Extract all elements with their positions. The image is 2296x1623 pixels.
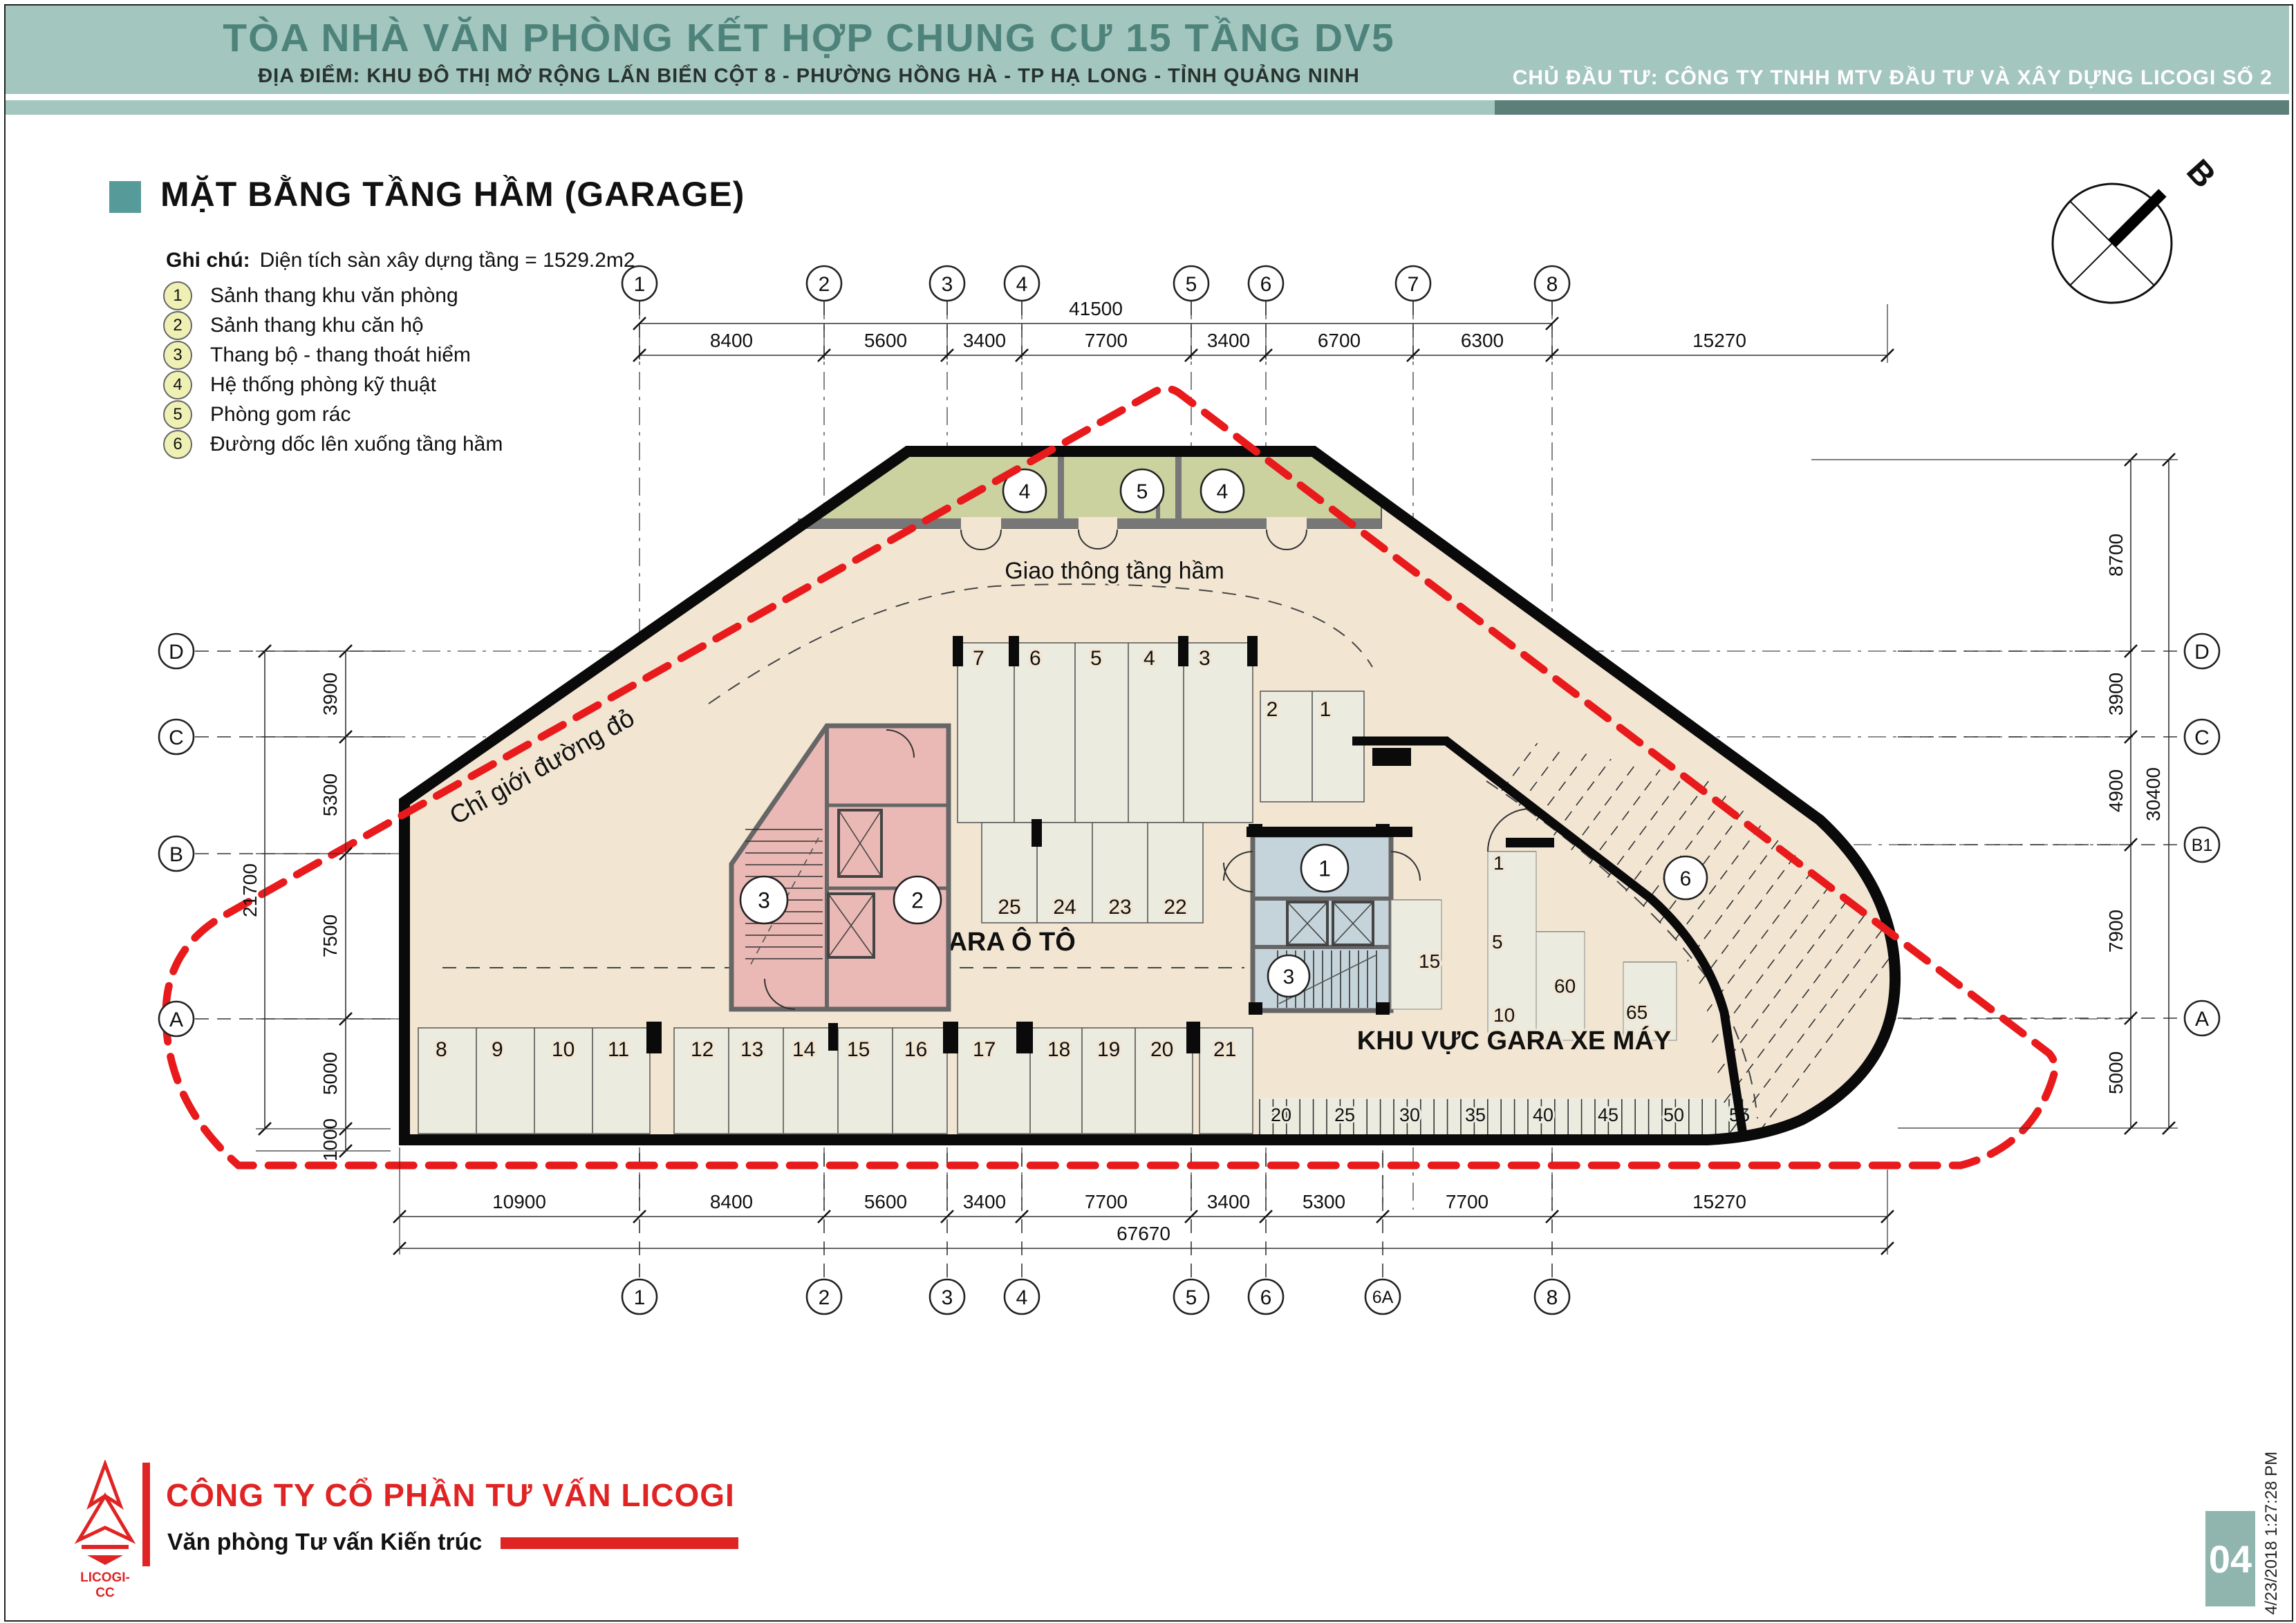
svg-text:7700: 7700 xyxy=(1085,1191,1128,1212)
svg-text:10: 10 xyxy=(1493,1004,1515,1026)
svg-text:KHU VỰC GARA XE MÁY: KHU VỰC GARA XE MÁY xyxy=(1357,1025,1671,1056)
svg-text:4: 4 xyxy=(1016,1286,1028,1309)
svg-text:5: 5 xyxy=(1492,931,1503,953)
svg-text:6700: 6700 xyxy=(1318,330,1361,351)
svg-text:C: C xyxy=(2194,726,2210,749)
svg-text:10: 10 xyxy=(552,1038,575,1061)
svg-text:30: 30 xyxy=(1399,1105,1420,1125)
svg-text:B: B xyxy=(2179,153,2223,195)
svg-text:8400: 8400 xyxy=(710,1191,753,1212)
logo-caption: LICOGI-CC xyxy=(72,1570,138,1601)
company-name: CÔNG TY CỔ PHẦN TƯ VẤN LICOGI xyxy=(166,1476,735,1514)
svg-text:1: 1 xyxy=(1318,856,1331,881)
svg-text:7700: 7700 xyxy=(1085,330,1128,351)
svg-text:B1: B1 xyxy=(2192,836,2213,855)
svg-text:3: 3 xyxy=(1199,647,1211,670)
svg-text:8700: 8700 xyxy=(2105,534,2127,576)
svg-text:23: 23 xyxy=(1108,896,1131,919)
svg-text:8400: 8400 xyxy=(710,330,753,351)
svg-text:B: B xyxy=(169,843,183,866)
svg-text:24: 24 xyxy=(1053,896,1076,919)
svg-text:6300: 6300 xyxy=(1461,330,1504,351)
svg-text:8: 8 xyxy=(436,1038,447,1061)
svg-text:5: 5 xyxy=(1137,480,1148,503)
north-arrow-icon: B xyxy=(2053,153,2223,303)
svg-text:3: 3 xyxy=(1283,966,1295,988)
svg-text:20: 20 xyxy=(1271,1105,1291,1125)
svg-text:5: 5 xyxy=(1090,647,1102,670)
svg-text:3400: 3400 xyxy=(963,1191,1006,1212)
svg-text:13: 13 xyxy=(740,1038,763,1061)
svg-text:2: 2 xyxy=(1267,698,1278,721)
svg-text:21: 21 xyxy=(1213,1038,1236,1061)
svg-text:4: 4 xyxy=(1217,480,1229,503)
svg-text:7500: 7500 xyxy=(319,914,341,957)
svg-text:12: 12 xyxy=(691,1038,713,1061)
svg-text:20: 20 xyxy=(1150,1038,1173,1061)
svg-text:25: 25 xyxy=(1334,1105,1355,1125)
svg-text:15: 15 xyxy=(847,1038,870,1061)
svg-text:A: A xyxy=(2195,1008,2209,1031)
svg-text:1000: 1000 xyxy=(319,1118,341,1161)
svg-text:1: 1 xyxy=(1493,852,1504,874)
svg-text:3400: 3400 xyxy=(963,330,1006,351)
svg-text:50: 50 xyxy=(1663,1105,1684,1125)
svg-text:4: 4 xyxy=(1016,273,1028,296)
svg-text:4900: 4900 xyxy=(2105,769,2127,812)
svg-text:7900: 7900 xyxy=(2105,910,2127,953)
svg-text:3400: 3400 xyxy=(1207,330,1250,351)
svg-text:8: 8 xyxy=(1547,273,1558,296)
svg-text:5600: 5600 xyxy=(864,1191,907,1212)
licogi-logo-icon xyxy=(72,1460,138,1584)
svg-text:25: 25 xyxy=(998,896,1020,919)
svg-text:10900: 10900 xyxy=(492,1191,546,1212)
svg-text:3: 3 xyxy=(942,1286,953,1309)
svg-text:5000: 5000 xyxy=(319,1052,341,1095)
svg-text:21700: 21700 xyxy=(239,863,261,917)
svg-text:C: C xyxy=(169,726,184,749)
svg-text:45: 45 xyxy=(1598,1105,1618,1125)
svg-text:17: 17 xyxy=(973,1038,996,1061)
svg-text:7: 7 xyxy=(973,647,984,670)
svg-text:19: 19 xyxy=(1097,1038,1120,1061)
svg-text:16: 16 xyxy=(904,1038,927,1061)
svg-text:15270: 15270 xyxy=(1692,330,1746,351)
svg-text:5: 5 xyxy=(1186,273,1197,296)
svg-text:30400: 30400 xyxy=(2143,767,2164,821)
svg-text:2: 2 xyxy=(911,888,924,913)
svg-text:3: 3 xyxy=(942,273,953,296)
svg-text:22: 22 xyxy=(1164,896,1186,919)
svg-text:15: 15 xyxy=(1419,950,1440,972)
page-number-badge: 04 xyxy=(2205,1511,2255,1606)
svg-text:4: 4 xyxy=(1019,480,1031,503)
svg-text:D: D xyxy=(2194,641,2210,664)
svg-text:6: 6 xyxy=(1680,867,1692,890)
svg-text:14: 14 xyxy=(792,1038,815,1061)
svg-text:60: 60 xyxy=(1554,975,1576,997)
floor-plan-svg: 454Giao thông tầng hầm7654325242322KHU V… xyxy=(0,0,2296,1623)
department-name: Văn phòng Tư vấn Kiến trúc xyxy=(167,1529,482,1556)
svg-text:6: 6 xyxy=(1260,273,1272,296)
svg-text:65: 65 xyxy=(1626,1002,1648,1023)
svg-text:2: 2 xyxy=(819,273,830,296)
footer-divider-bar xyxy=(142,1463,150,1566)
svg-text:5300: 5300 xyxy=(1303,1191,1345,1212)
svg-text:2: 2 xyxy=(819,1286,830,1309)
print-timestamp: 4/23/2018 1:27:28 PM xyxy=(2262,1452,2281,1615)
svg-text:18: 18 xyxy=(1047,1038,1070,1061)
svg-text:1: 1 xyxy=(1320,698,1332,721)
svg-text:41500: 41500 xyxy=(1069,298,1123,319)
svg-text:9: 9 xyxy=(492,1038,503,1061)
svg-text:7700: 7700 xyxy=(1446,1191,1488,1212)
floor-plan: 454Giao thông tầng hầm7654325242322KHU V… xyxy=(0,0,2296,1623)
drawing-sheet: TÒA NHÀ VĂN PHÒNG KẾT HỢP CHUNG CƯ 15 TẦ… xyxy=(0,0,2296,1623)
svg-text:5000: 5000 xyxy=(2105,1051,2127,1094)
svg-text:6: 6 xyxy=(1029,647,1041,670)
svg-text:40: 40 xyxy=(1533,1105,1553,1125)
svg-text:7: 7 xyxy=(1408,273,1419,296)
svg-text:1: 1 xyxy=(634,1286,646,1309)
svg-text:67670: 67670 xyxy=(1117,1223,1170,1244)
svg-text:3900: 3900 xyxy=(2105,673,2127,715)
svg-text:5: 5 xyxy=(1186,1286,1197,1309)
svg-text:Giao thông tầng hầm: Giao thông tầng hầm xyxy=(1005,558,1224,584)
svg-text:3900: 3900 xyxy=(319,673,341,715)
svg-text:1: 1 xyxy=(634,273,646,296)
svg-text:6A: 6A xyxy=(1372,1288,1394,1307)
svg-text:5600: 5600 xyxy=(864,330,907,351)
svg-text:6: 6 xyxy=(1260,1286,1272,1309)
svg-text:35: 35 xyxy=(1465,1105,1486,1125)
svg-text:5300: 5300 xyxy=(319,773,341,816)
footer-underline-bar xyxy=(501,1537,738,1549)
svg-text:11: 11 xyxy=(608,1038,629,1061)
svg-text:3400: 3400 xyxy=(1207,1191,1250,1212)
svg-text:15270: 15270 xyxy=(1692,1191,1746,1212)
svg-text:3: 3 xyxy=(758,888,770,913)
svg-text:4: 4 xyxy=(1144,647,1155,670)
svg-text:8: 8 xyxy=(1547,1286,1558,1309)
svg-text:D: D xyxy=(169,641,184,664)
svg-text:A: A xyxy=(169,1008,183,1031)
